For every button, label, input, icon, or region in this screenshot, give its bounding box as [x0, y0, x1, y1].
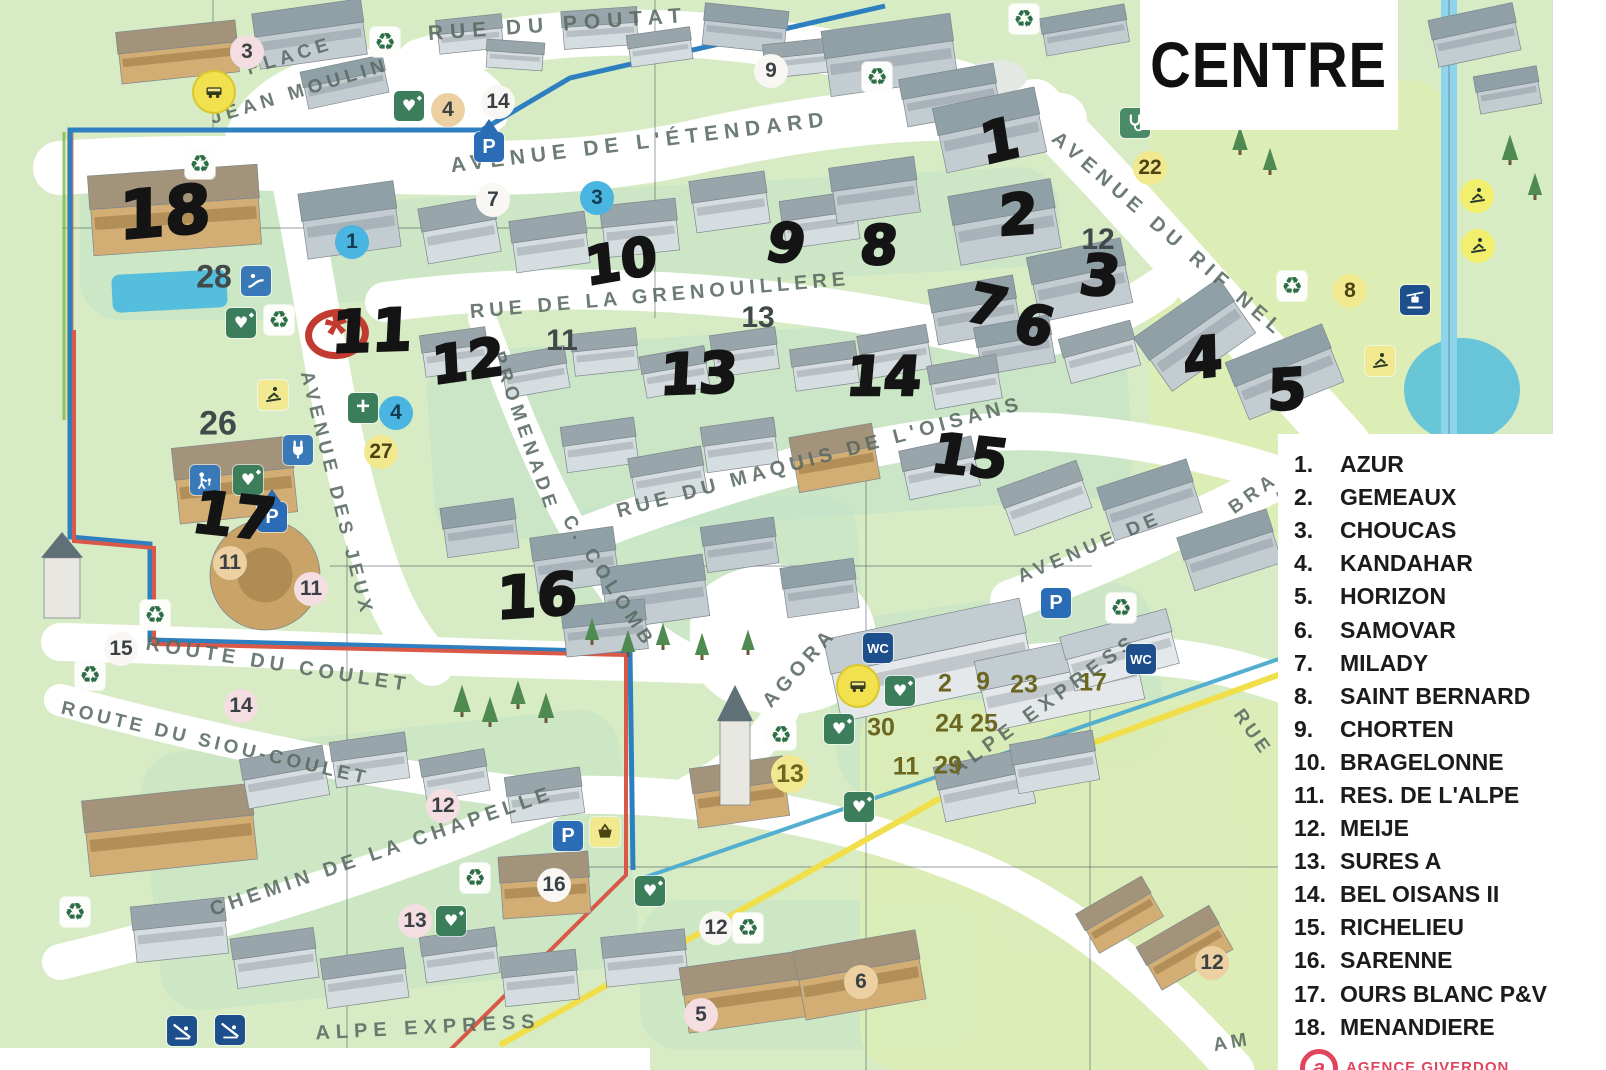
legend-item-number: 10. [1278, 749, 1340, 776]
recycling-icon: ♻ [1277, 271, 1307, 301]
defibrillator-heart-icon: ♥◆ [824, 714, 854, 744]
legend-item: 10.BRAGELONNE [1278, 746, 1606, 779]
map-badge: 22 [1133, 151, 1167, 185]
map-badge: 11 [294, 572, 328, 606]
legend-item-number: 16. [1278, 947, 1340, 974]
recycling-icon: ♻ [60, 897, 90, 927]
agora-number: 13 [771, 755, 809, 793]
street-label: ROUTE DU COULET [144, 633, 412, 698]
handwritten-number: 11 [330, 301, 414, 362]
handwritten-number: 4 [1183, 329, 1223, 389]
legend-item-number: 9. [1278, 716, 1340, 743]
recycling-icon: ♻ [264, 305, 294, 335]
ev-plug-icon [283, 435, 313, 465]
street-label: ALPE EXPRESS [315, 1011, 541, 1046]
street-label: BRA [1225, 469, 1283, 520]
legend-item-name: SURES A [1340, 848, 1441, 875]
handwritten-number: 6 [1008, 297, 1059, 356]
agora-number: 17 [1079, 669, 1107, 698]
agora-number: 23 [1010, 671, 1038, 700]
legend-item: 5.HORIZON [1278, 580, 1606, 613]
sledging-icon [215, 1015, 245, 1045]
resort-map-page: RUE DU POUTATAVENUE DE L'ÉTENDARDPLACEJE… [0, 0, 1606, 1070]
legend-item: 18.MENANDIERE [1278, 1011, 1606, 1044]
legend-item-number: 17. [1278, 981, 1340, 1008]
recycling-icon: ♻ [370, 27, 400, 57]
wc-icon: WC [863, 633, 893, 663]
pharmacy-cross-icon: + [348, 393, 378, 423]
skier-blob-icon [1461, 229, 1495, 263]
legend-item-number: 12. [1278, 815, 1340, 842]
legend-item: 8.SAINT BERNARD [1278, 680, 1606, 713]
recycling-icon: ♻ [75, 660, 105, 690]
defibrillator-heart-icon: ♥◆ [436, 906, 466, 936]
street-label: ALPE EXPRESS [947, 629, 1143, 780]
handwritten-number: 18 [119, 176, 211, 250]
legend-item-number: 6. [1278, 617, 1340, 644]
legend-item-number: 11. [1278, 782, 1340, 809]
parking-pin-icon: P [474, 132, 504, 162]
legend-item-number: 2. [1278, 484, 1340, 511]
handwritten-number: 17 [188, 483, 279, 549]
recycling-icon: ♻ [1106, 593, 1136, 623]
skier-blob-icon [1460, 179, 1494, 213]
legend-item-name: CHOUCAS [1340, 517, 1456, 544]
agora-number: 29 [934, 752, 962, 781]
defibrillator-heart-icon: ♥◆ [885, 676, 915, 706]
sledging-icon [167, 1016, 197, 1046]
legend-list: 1.AZUR2.GEMEAUX3.CHOUCAS4.KANDAHAR5.HORI… [1278, 448, 1606, 1044]
map-title-box: CENTRE [1140, 0, 1398, 130]
defibrillator-heart-icon: ♥◆ [394, 91, 424, 121]
legend-item-number: 15. [1278, 914, 1340, 941]
street-label: CHEMIN DE LA CHAPELLE [207, 782, 557, 922]
street-label: JEAN MOULIN [208, 54, 392, 129]
map-badge: 4 [431, 93, 465, 127]
skier-icon [1365, 346, 1395, 376]
page-title: CENTRE [1151, 28, 1388, 102]
map-number: 26 [199, 405, 237, 444]
street-label: AVENUE DE [1015, 508, 1166, 589]
map-number: 28 [196, 259, 232, 296]
agency-logo: a AGENCE GIVERDON [1278, 1049, 1606, 1070]
legend-item: 6.SAMOVAR [1278, 613, 1606, 646]
legend-item-number: 14. [1278, 881, 1340, 908]
agora-number: 25 [970, 710, 998, 739]
legend-item-number: 1. [1278, 451, 1340, 478]
map-number: 11 [546, 324, 578, 358]
handwritten-number: 15 [927, 426, 1012, 487]
legend-item-number: 5. [1278, 583, 1340, 610]
recycling-icon: ♻ [1009, 4, 1039, 34]
legend-item: 4.KANDAHAR [1278, 547, 1606, 580]
legend-item-name: SAINT BERNARD [1340, 683, 1530, 710]
handwritten-number: 2 [998, 187, 1038, 246]
legend-item-name: MEIJE [1340, 815, 1409, 842]
map-badge: 12 [699, 911, 733, 945]
legend-item: 13.SURES A [1278, 845, 1606, 878]
map-badge: 9 [754, 54, 788, 88]
legend-item: 17.OURS BLANC P&V [1278, 978, 1606, 1011]
recycling-icon: ♻ [862, 62, 892, 92]
agora-number: 24 [935, 710, 963, 739]
street-label: AM [1212, 1029, 1253, 1057]
street-label: AGORA [758, 623, 842, 712]
legend-item-name: SAMOVAR [1340, 617, 1456, 644]
agency-logo-text: AGENCE GIVERDON [1346, 1059, 1509, 1070]
map-badge: 27 [364, 435, 398, 469]
map-badge: 5 [684, 998, 718, 1032]
legend-item: 3.CHOUCAS [1278, 514, 1606, 547]
map-badge: 16 [537, 868, 571, 902]
street-label: AVENUE DE L'ÉTENDARD [449, 108, 830, 178]
legend-item: 15.RICHELIEU [1278, 911, 1606, 944]
legend-item-number: 4. [1278, 550, 1340, 577]
parking-icon: P [1041, 588, 1071, 618]
recycling-icon: ♻ [733, 913, 763, 943]
agora-number: 30 [867, 714, 895, 743]
street-label: RUE DU POUTAT [427, 4, 689, 46]
agora-number: 9 [976, 668, 990, 697]
legend-item-name: GEMEAUX [1340, 484, 1456, 511]
map-badge: 1 [335, 225, 369, 259]
map-number: 13 [741, 301, 774, 335]
paper-fade [0, 1048, 650, 1070]
recycling-icon: ♻ [766, 720, 796, 750]
legend-item: 2.GEMEAUX [1278, 481, 1606, 514]
legend-panel: 1.AZUR2.GEMEAUX3.CHOUCAS4.KANDAHAR5.HORI… [1278, 434, 1606, 1070]
handwritten-number: 8 [858, 219, 900, 273]
handwritten-number: 5 [1267, 362, 1307, 421]
shopping-basket-icon [590, 817, 620, 847]
legend-item: 9.CHORTEN [1278, 713, 1606, 746]
agora-number: 11 [893, 753, 919, 782]
legend-item: 1.AZUR [1278, 448, 1606, 481]
handwritten-number: 9 [761, 215, 810, 273]
legend-item-name: HORIZON [1340, 583, 1446, 610]
ski-school-icon [258, 380, 288, 410]
legend-item-name: CHORTEN [1340, 716, 1454, 743]
legend-item-name: RES. DE L'ALPE [1340, 782, 1519, 809]
legend-item-name: OURS BLANC P&V [1340, 981, 1547, 1008]
parking-icon: P [553, 821, 583, 851]
agora-number: 2 [938, 670, 952, 699]
handwritten-number: 1 [977, 110, 1024, 175]
legend-item-name: AZUR [1340, 451, 1404, 478]
agency-logo-icon: a [1300, 1049, 1338, 1070]
street-label: ROUTE DU SIOU-COULET [59, 698, 371, 790]
legend-item-name: MENANDIERE [1340, 1014, 1495, 1041]
defibrillator-heart-icon: ♥◆ [635, 876, 665, 906]
recycling-icon: ♻ [140, 600, 170, 630]
street-label: RUE [1228, 705, 1276, 760]
legend-item: 12.MEIJE [1278, 812, 1606, 845]
handwritten-number: 13 [659, 346, 740, 405]
legend-item: 7.MILADY [1278, 647, 1606, 680]
pool-slide-icon [241, 266, 271, 296]
legend-item: 16.SARENNE [1278, 944, 1606, 977]
map-badge: 3 [580, 181, 614, 215]
legend-item: 14.BEL OISANS II [1278, 878, 1606, 911]
legend-item-name: KANDAHAR [1340, 550, 1473, 577]
legend-item-number: 13. [1278, 848, 1340, 875]
map-badge: 8 [1333, 274, 1367, 308]
handwritten-number: 12 [431, 331, 505, 393]
legend-item-number: 7. [1278, 650, 1340, 677]
map-badge: 7 [476, 183, 510, 217]
map-badge: 3 [230, 35, 264, 69]
legend-item-name: SARENNE [1340, 947, 1452, 974]
handwritten-number: 7 [961, 276, 1014, 336]
map-badge: 15 [104, 632, 138, 666]
legend-item-name: BEL OISANS II [1340, 881, 1499, 908]
shuttle-bus-icon [194, 72, 234, 112]
handwritten-number: 16 [496, 564, 578, 628]
legend-item: 11.RES. DE L'ALPE [1278, 779, 1606, 812]
map-badge: 4 [379, 396, 413, 430]
defibrillator-heart-icon: ♥◆ [226, 308, 256, 338]
legend-item-number: 3. [1278, 517, 1340, 544]
defibrillator-heart-icon: ♥◆ [844, 792, 874, 822]
map-badge: 12 [426, 789, 460, 823]
map-badge: 6 [844, 965, 878, 999]
legend-item-name: RICHELIEU [1340, 914, 1464, 941]
legend-item-name: MILADY [1340, 650, 1428, 677]
handwritten-number: 14 [844, 350, 924, 404]
legend-item-number: 8. [1278, 683, 1340, 710]
map-badge: 14 [481, 85, 515, 119]
handwritten-number: 10 [583, 230, 659, 295]
legend-item-number: 18. [1278, 1014, 1340, 1041]
wc-icon: WC [1126, 644, 1156, 674]
map-badge: 12 [1195, 946, 1229, 980]
cable-car-icon [1400, 285, 1430, 315]
map-badge: 13 [398, 904, 432, 938]
recycling-icon: ♻ [460, 863, 490, 893]
handwritten-number: 3 [1076, 248, 1124, 306]
legend-item-name: BRAGELONNE [1340, 749, 1504, 776]
map-badge: 14 [224, 689, 258, 723]
shuttle-bus-icon [838, 666, 878, 706]
